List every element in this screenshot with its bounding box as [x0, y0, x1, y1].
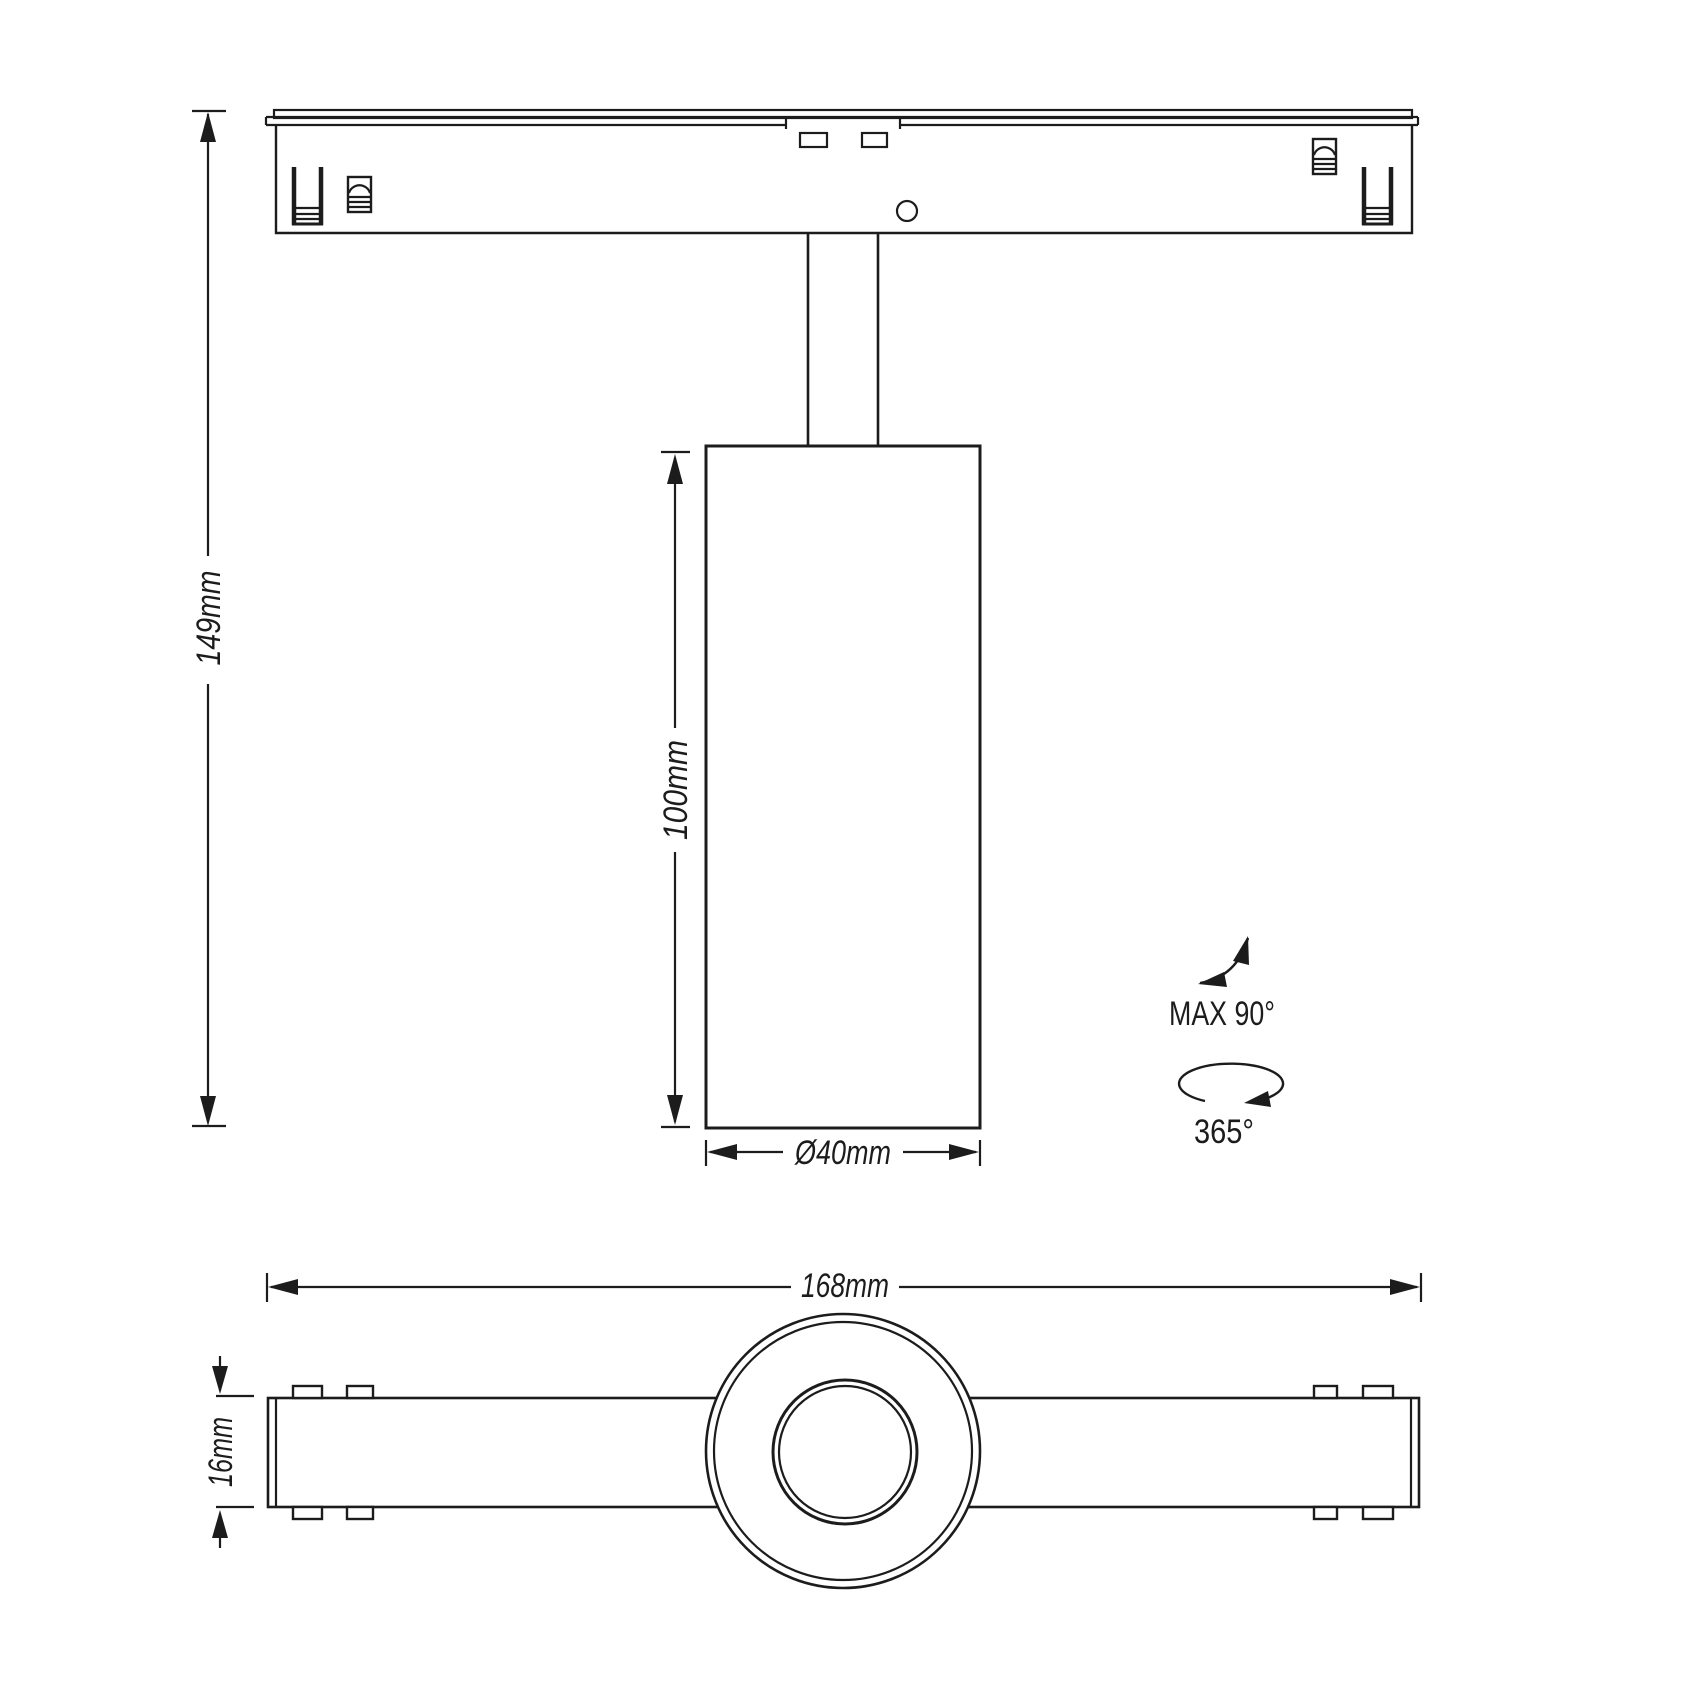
rotation-arrowhead-icon: [1244, 1091, 1271, 1107]
spring-clip-left: [292, 167, 323, 225]
clip-tab: [1363, 1386, 1393, 1398]
clip-tab: [347, 1507, 373, 1519]
contact-slot-right: [862, 133, 887, 147]
arrowhead-down-icon: [667, 1095, 683, 1125]
track-adapter-body: [276, 125, 1412, 233]
arrowhead-down-icon: [200, 1096, 216, 1126]
spotlight-lens-outer: [773, 1380, 917, 1524]
contact-clip-right: [1313, 139, 1336, 174]
screw-hole: [897, 201, 917, 221]
rotation-annotations: MAX 90° 365°: [1169, 936, 1283, 1151]
drawing-canvas: 149mm 100mm Ø40mm MAX 90° 365°: [0, 0, 1700, 1700]
arrowhead-left-icon: [268, 1279, 298, 1295]
stem: [808, 233, 878, 446]
bottom-view-track-spotlight: [268, 1314, 1419, 1588]
tilt-arrowhead-right-icon: [1233, 936, 1249, 965]
dimension-thickness-16: 16mm: [202, 1356, 254, 1548]
dim-label-40mm: Ø40mm: [794, 1134, 891, 1172]
dimension-diameter-40: Ø40mm: [706, 1134, 980, 1172]
clip-tab: [1314, 1386, 1337, 1398]
arrowhead-up-icon: [200, 112, 216, 142]
dimension-height-149: 149mm: [190, 111, 228, 1126]
dim-label-168mm: 168mm: [801, 1267, 889, 1305]
dimension-length-168: 168mm: [267, 1267, 1421, 1305]
dim-label-16mm: 16mm: [202, 1417, 240, 1487]
clip-tab: [347, 1386, 373, 1398]
spring-clip-right: [1362, 167, 1393, 225]
arrowhead-right-icon: [949, 1144, 979, 1160]
arrowhead-left-icon: [707, 1144, 737, 1160]
arrowhead-right-icon: [1390, 1279, 1420, 1295]
tilt-arrowhead-left-icon: [1198, 972, 1227, 987]
track-rail: [266, 110, 1418, 129]
contact-clip-left: [348, 177, 371, 212]
dim-label-149mm: 149mm: [190, 571, 228, 666]
technical-drawing: 149mm 100mm Ø40mm MAX 90° 365°: [0, 0, 1700, 1700]
arrowhead-up-icon: [667, 454, 683, 484]
clip-tab: [1363, 1507, 1393, 1519]
side-view-track-spotlight: [266, 110, 1418, 1128]
dim-label-100mm: 100mm: [657, 740, 695, 840]
clip-tab: [293, 1386, 322, 1398]
clip-tab: [1314, 1507, 1337, 1519]
tilt-angle-label: MAX 90°: [1169, 995, 1275, 1033]
rotation-angle-label: 365°: [1194, 1113, 1254, 1151]
contact-slot-left: [800, 133, 827, 147]
arrowhead-down-icon: [212, 1366, 228, 1394]
dimension-body-100: 100mm: [657, 452, 695, 1127]
lamp-cylinder: [706, 446, 980, 1128]
clip-tab: [293, 1507, 322, 1519]
